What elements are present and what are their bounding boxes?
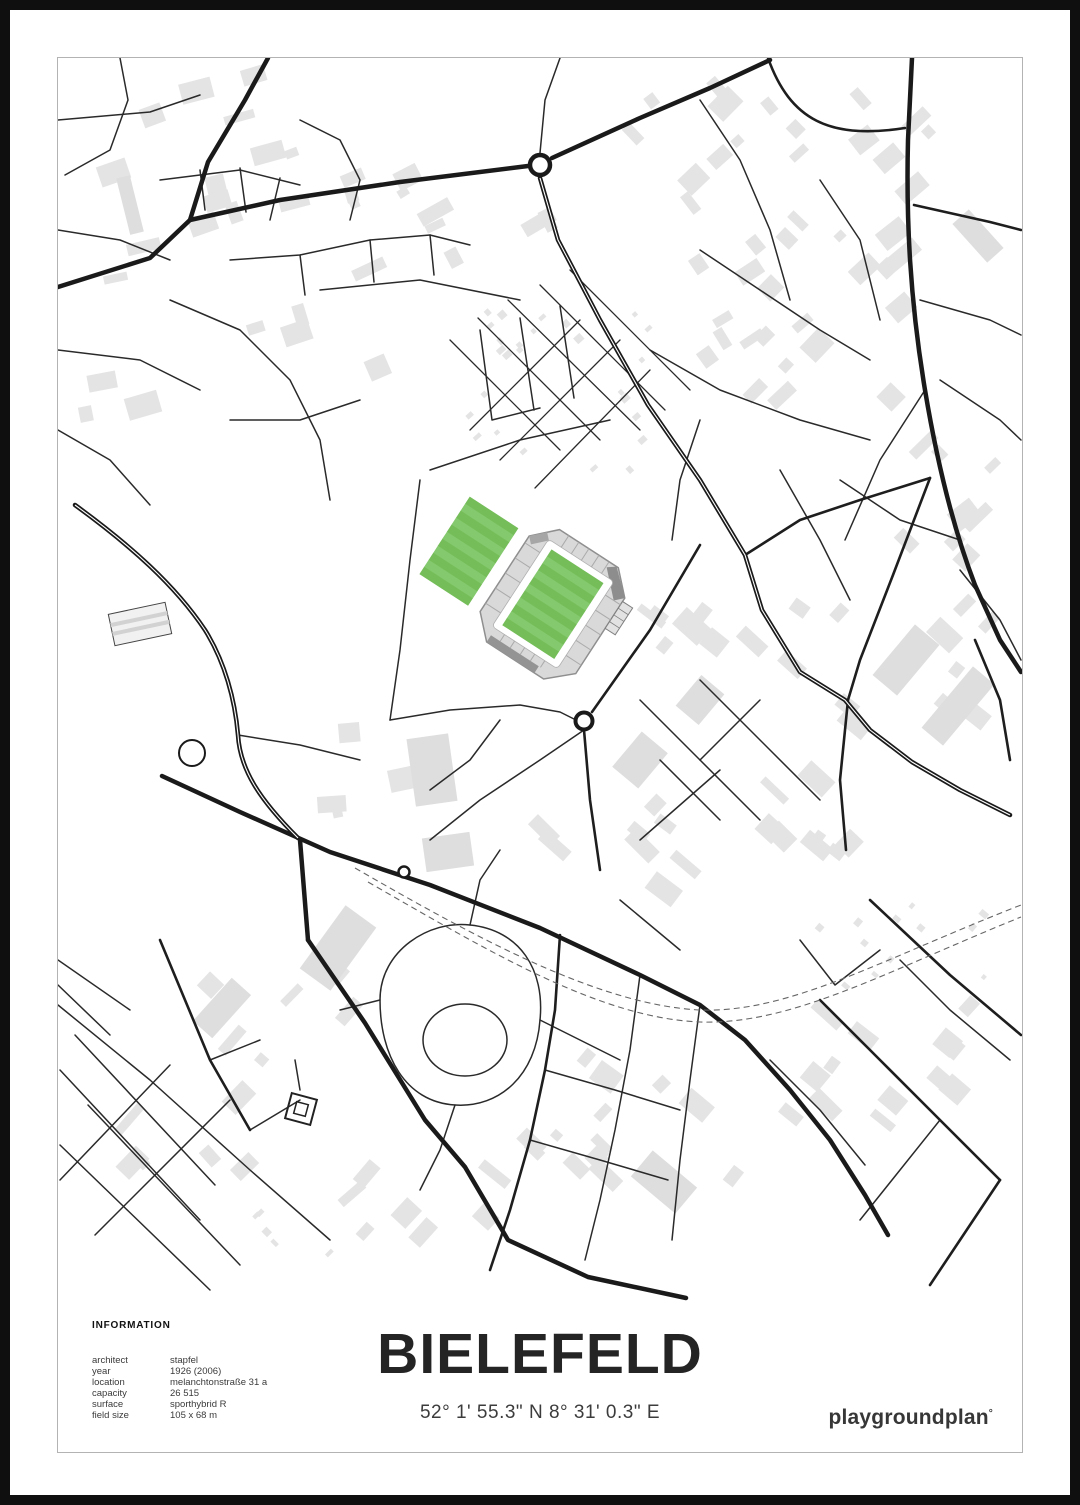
building [593, 1103, 612, 1122]
building [712, 310, 733, 328]
title-wrap: BIELEFELD [58, 1326, 1022, 1383]
building [631, 1150, 697, 1213]
building [778, 357, 794, 373]
building [798, 760, 836, 797]
logo-wrap: playgroundplan° [828, 1406, 993, 1430]
roundabout-icon [530, 155, 550, 175]
building [680, 191, 701, 215]
building [786, 119, 806, 139]
building [908, 902, 915, 909]
building [124, 390, 163, 421]
building [713, 327, 733, 350]
building [280, 983, 303, 1007]
building [338, 722, 361, 743]
building [199, 1144, 222, 1167]
building [284, 147, 299, 160]
building [396, 186, 410, 199]
building [473, 432, 482, 441]
building [799, 328, 834, 363]
building [78, 405, 94, 423]
building [860, 939, 869, 948]
building [422, 832, 474, 872]
building [254, 1052, 269, 1067]
building [815, 923, 825, 933]
small-roundabout-icon [576, 713, 593, 730]
building [577, 1048, 596, 1068]
building [706, 144, 733, 170]
building [317, 795, 347, 813]
building [656, 636, 674, 655]
building [677, 163, 710, 196]
road-junctions [179, 155, 593, 878]
building [894, 171, 929, 205]
building [497, 309, 508, 320]
building [670, 850, 702, 880]
building [787, 210, 809, 231]
park-paths [380, 924, 541, 1105]
coordinates-text: 52° 1' 55.3" N 8° 31' 0.3" E [420, 1402, 660, 1423]
building [637, 435, 647, 445]
building [767, 381, 797, 410]
building [632, 311, 638, 317]
crossing-icon [399, 867, 410, 878]
building [550, 1129, 563, 1142]
building [981, 974, 987, 980]
building [590, 464, 599, 472]
building [745, 234, 766, 256]
building [116, 175, 144, 235]
building [676, 675, 725, 725]
building [632, 412, 641, 421]
building [644, 325, 652, 333]
building [364, 353, 393, 381]
building [325, 1249, 334, 1258]
building [516, 346, 524, 354]
building [871, 971, 879, 979]
building [645, 871, 683, 907]
building [876, 382, 905, 411]
building [480, 391, 488, 399]
building [589, 1060, 624, 1094]
building [833, 229, 846, 242]
brand-logo: playgroundplan° [828, 1406, 993, 1429]
building [948, 661, 965, 679]
building [351, 257, 387, 282]
building [406, 733, 457, 806]
building [811, 1000, 844, 1031]
building [644, 794, 667, 817]
striped-building [108, 602, 171, 645]
building [775, 227, 798, 250]
building [530, 328, 536, 334]
info-row-capacity: capacity 26 515 [92, 1388, 267, 1399]
city-map [58, 58, 1022, 1308]
building [638, 356, 645, 363]
building [730, 134, 744, 148]
building [916, 923, 925, 932]
building [723, 1165, 744, 1187]
building [86, 371, 117, 393]
building [538, 313, 546, 321]
building [392, 163, 423, 191]
building [391, 1197, 423, 1229]
building [953, 594, 976, 617]
page-title: BIELEFELD [377, 1322, 703, 1386]
building [261, 1227, 272, 1238]
building [853, 917, 863, 927]
building [829, 602, 849, 623]
building [877, 1085, 908, 1115]
building [848, 125, 880, 156]
building [520, 447, 528, 455]
building [408, 1217, 438, 1248]
building [688, 253, 709, 275]
building [849, 87, 871, 110]
building [246, 320, 266, 336]
building [139, 102, 167, 128]
building [484, 308, 492, 316]
building [356, 1222, 375, 1241]
building [952, 209, 1003, 262]
building [760, 776, 789, 804]
building [478, 1159, 511, 1189]
building [735, 258, 766, 286]
building [984, 457, 1001, 474]
building [494, 429, 501, 435]
building [270, 1239, 279, 1248]
building [573, 333, 585, 344]
building [679, 1088, 715, 1123]
building [760, 96, 779, 115]
building [848, 1021, 880, 1050]
building [465, 411, 474, 419]
building [922, 666, 995, 745]
castle-structure [285, 1093, 317, 1125]
building [340, 167, 366, 187]
building [444, 247, 464, 269]
building [921, 124, 936, 139]
building [873, 142, 906, 174]
building [643, 92, 660, 109]
building [789, 143, 809, 162]
building [696, 345, 719, 369]
building [841, 982, 850, 991]
building [789, 597, 811, 618]
logo-degree-mark: ° [989, 1408, 993, 1419]
building [736, 626, 769, 658]
poster-inner-area: INFORMATION architect stapfel year 1926 … [57, 57, 1023, 1453]
pond-icon [179, 740, 205, 766]
building [652, 1075, 671, 1094]
stadium-map-poster: INFORMATION architect stapfel year 1926 … [0, 0, 1080, 1505]
building [625, 465, 634, 474]
building [250, 140, 287, 167]
